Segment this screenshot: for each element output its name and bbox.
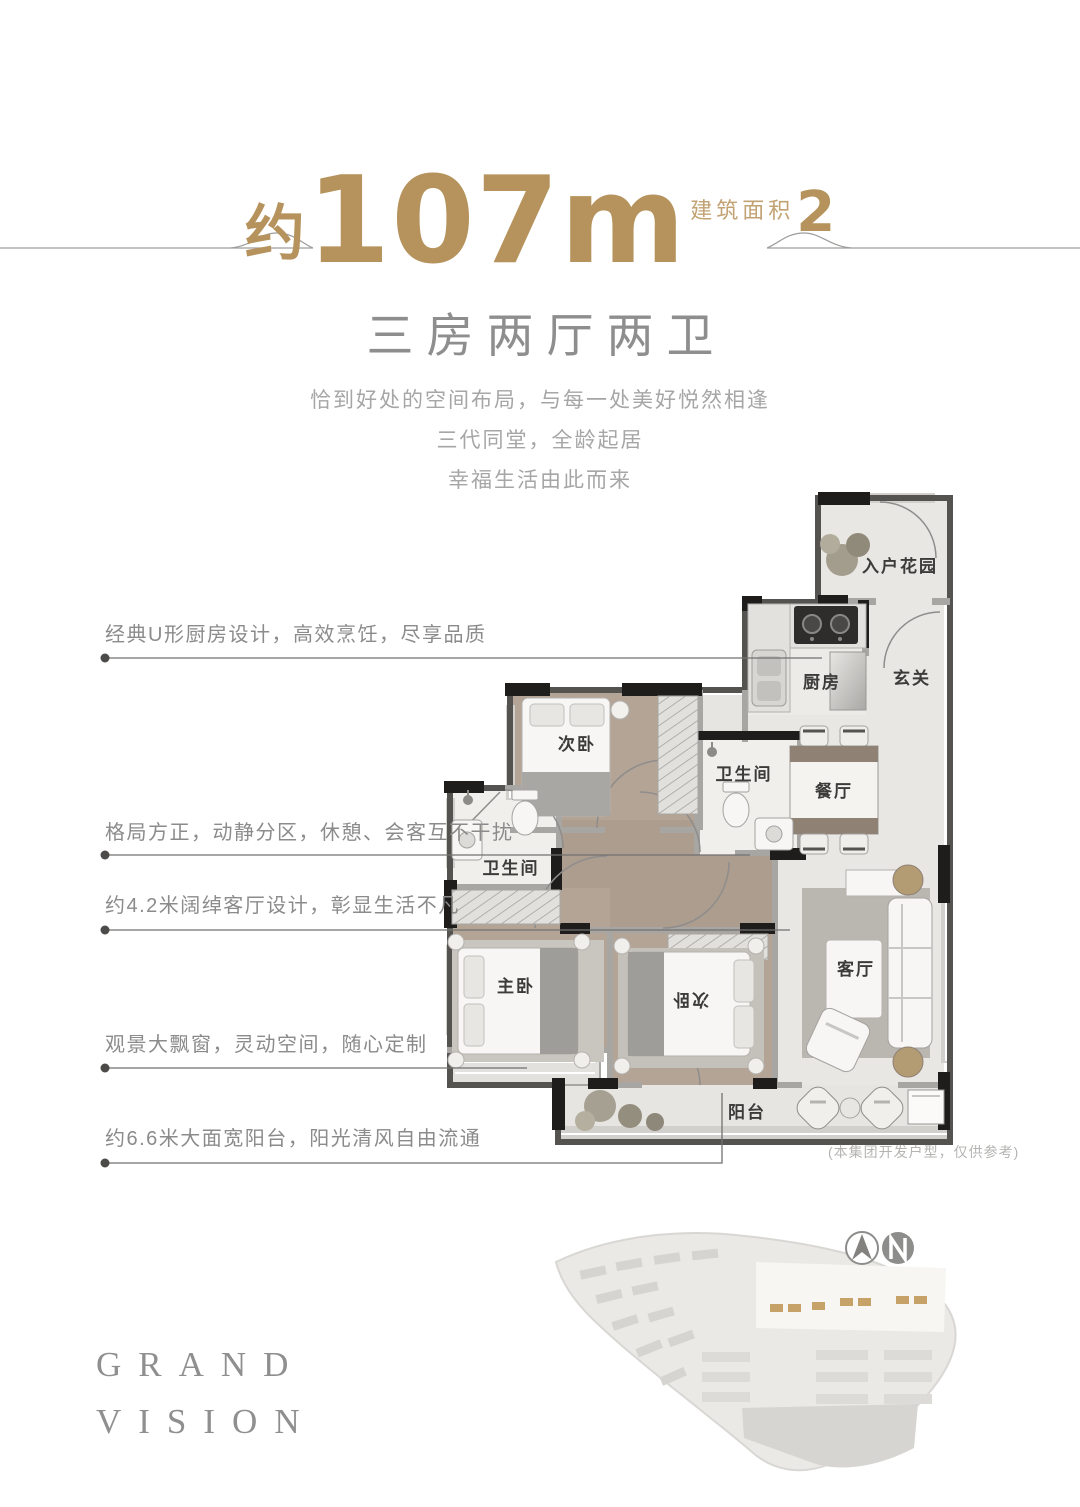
washer-icon (908, 1090, 944, 1124)
description-line-1: 恰到好处的空间布局，与每一处美好悦然相逢 (0, 381, 1080, 421)
callout-balcony: 约6.6米大面宽阳台，阳光清风自由流通 (105, 1122, 481, 1151)
brand-logo: GRAND VISION (96, 1336, 317, 1450)
room-label-dining: 餐厅 (815, 781, 853, 801)
description: 恰到好处的空间布局，与每一处美好悦然相逢 三代同堂，全龄起居 幸福生活由此而来 (0, 381, 1080, 501)
callout-kitchen: 经典U形厨房设计，高效烹饪，尽享品质 (105, 618, 486, 647)
approx-prefix: 约 (245, 185, 307, 282)
room-label-kitchen: 厨房 (803, 672, 841, 692)
bed-top-icon (522, 696, 698, 816)
room-label-balcony: 阳台 (728, 1102, 766, 1122)
area-label: 建筑面积 (690, 191, 794, 225)
callout-living: 约4.2米阔绰客厅设计，彰显生活不凡 (105, 889, 460, 918)
room-label-bedroom-bottom: 次卧 (671, 990, 709, 1010)
floor-plan: 入户花园 玄关 厨房 次卧 卫生间 餐厅 卫生间 主卧 次卧 客厅 阳台 (444, 492, 951, 1142)
area-superscript: 2 (796, 191, 835, 236)
north-compass-icon (846, 1232, 914, 1264)
room-label-bathroom-left: 卫生间 (483, 858, 540, 878)
room-label-entry-garden: 入户花园 (862, 556, 938, 576)
room-label-master-bedroom: 主卧 (497, 976, 535, 996)
description-line-2: 三代同堂，全龄起居 (0, 421, 1080, 461)
room-label-bedroom-top: 次卧 (558, 734, 596, 754)
brand-line-1: GRAND (96, 1336, 317, 1393)
callout-layout: 格局方正，动静分区，休憩、会客互不干扰 (105, 816, 514, 845)
plan-disclaimer: (本集团开发户型，仅供参考) (828, 1142, 1019, 1162)
area-meta: 建筑面积 2 (690, 191, 835, 236)
area-number: 107m (307, 162, 687, 282)
stove-icon (794, 606, 858, 644)
poster-page: 入户花园 玄关 厨房 次卧 卫生间 餐厅 卫生间 主卧 次卧 客厅 阳台 (0, 0, 1080, 1507)
layout-subtitle: 三房两厅两卫 (0, 297, 1080, 366)
room-label-bathroom-top: 卫生间 (716, 764, 773, 784)
brand-line-2: VISION (96, 1393, 317, 1450)
area-title: 约 107m 建筑面积 2 (0, 162, 1080, 282)
description-line-3: 幸福生活由此而来 (0, 461, 1080, 501)
callout-baywindow: 观景大飘窗，灵动空间，随心定制 (105, 1028, 428, 1057)
room-label-living-room: 客厅 (836, 959, 875, 979)
site-map (556, 1233, 956, 1470)
room-label-foyer: 玄关 (893, 668, 931, 688)
